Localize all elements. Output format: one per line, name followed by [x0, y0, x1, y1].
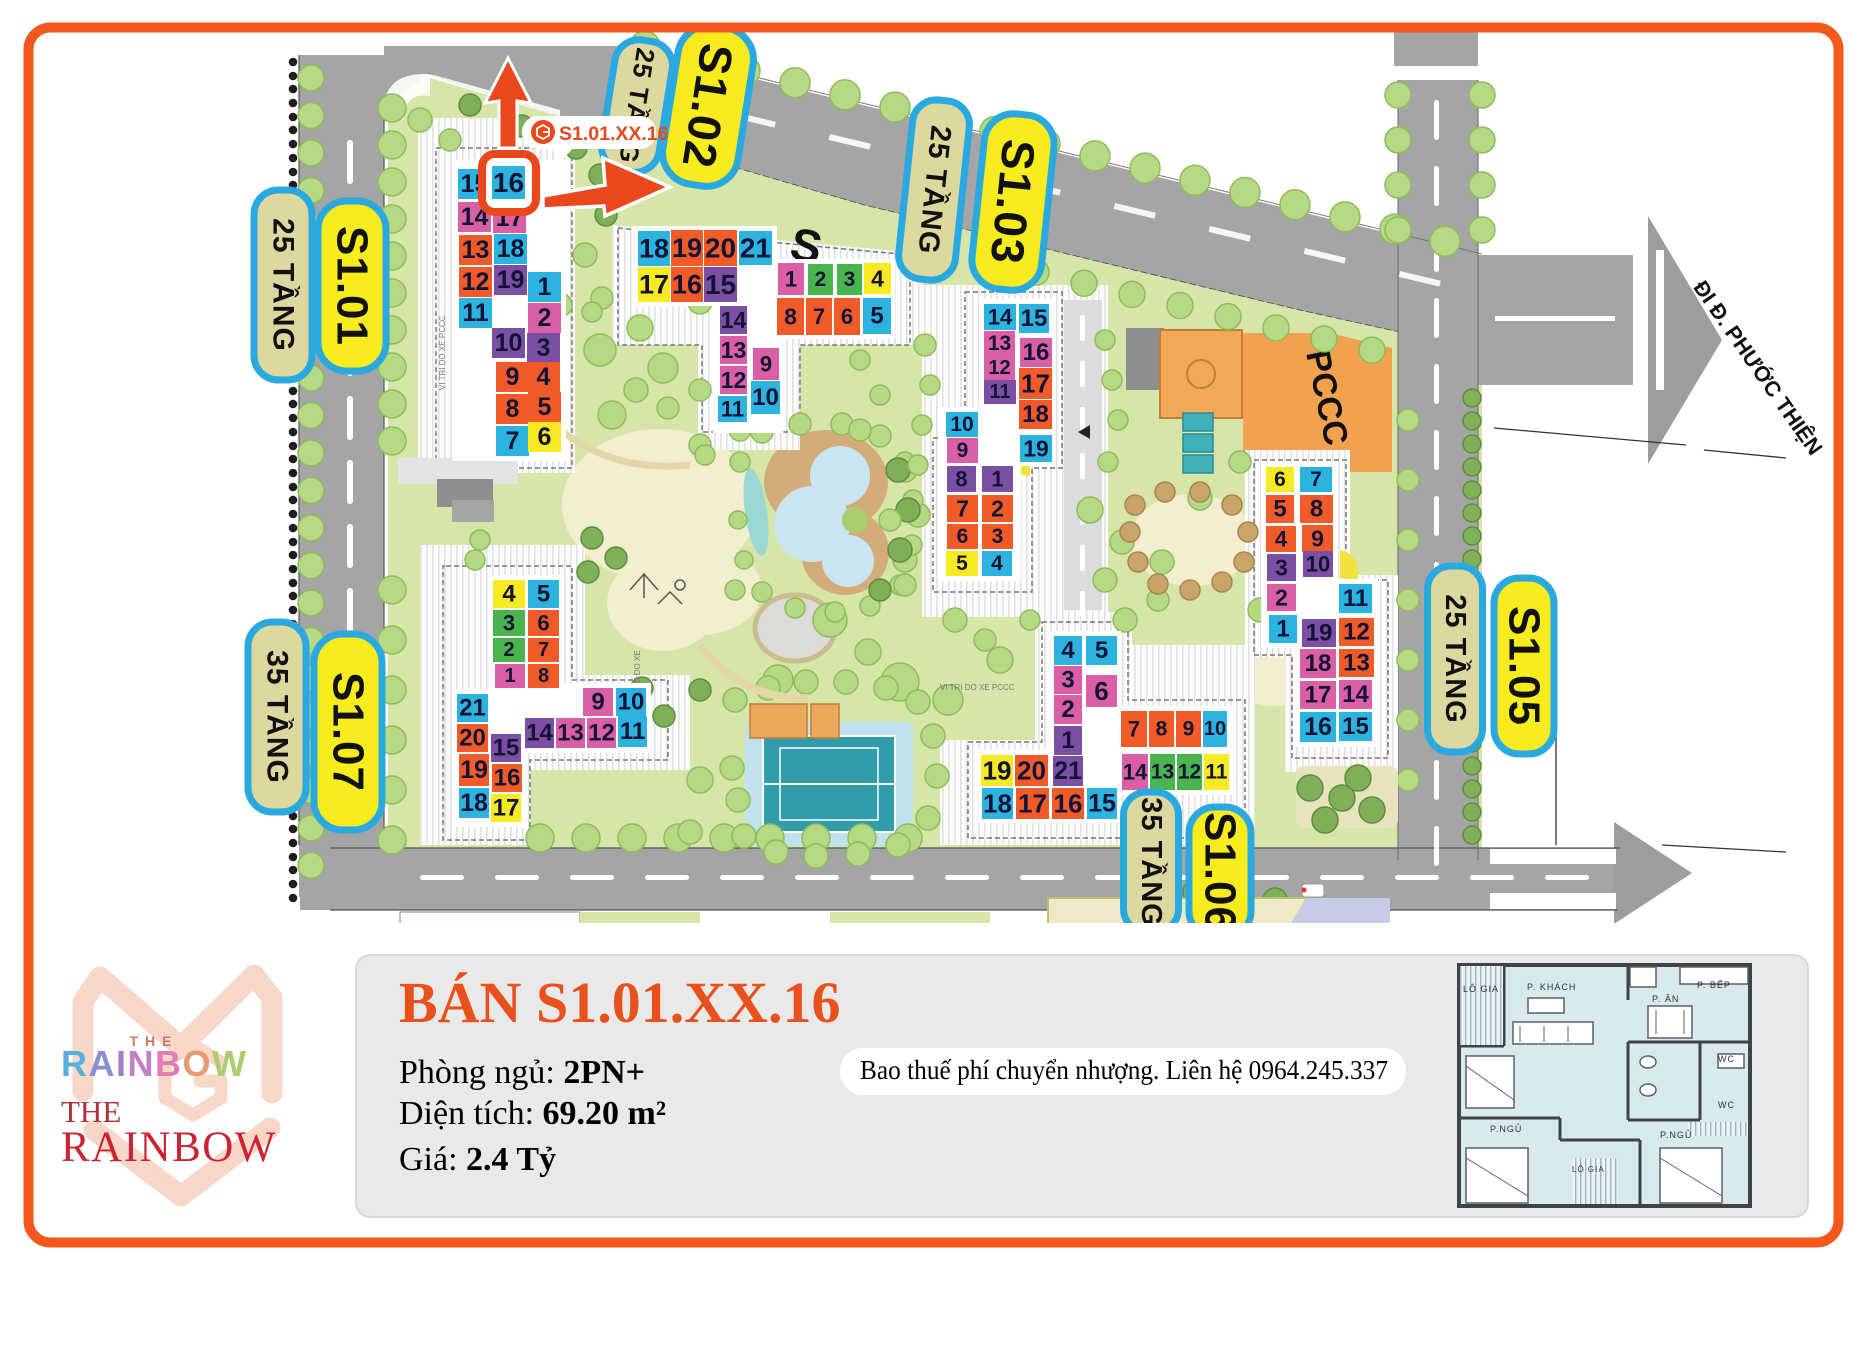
svg-text:P. ĂN: P. ĂN: [1652, 994, 1679, 1004]
svg-text:3: 3: [844, 268, 856, 291]
svg-text:5: 5: [537, 581, 550, 608]
svg-text:12: 12: [462, 268, 490, 296]
svg-text:11: 11: [1205, 761, 1228, 784]
svg-text:9: 9: [506, 363, 520, 391]
svg-text:8: 8: [955, 467, 967, 492]
svg-text:2: 2: [538, 304, 552, 332]
svg-text:25 TẦNG: 25 TẦNG: [1439, 594, 1473, 723]
svg-text:20: 20: [459, 725, 486, 752]
svg-text:LÔ GIA: LÔ GIA: [1463, 984, 1499, 994]
svg-text:8: 8: [784, 304, 797, 330]
svg-text:16: 16: [1023, 339, 1050, 366]
svg-text:4: 4: [991, 552, 1003, 575]
svg-text:10: 10: [1204, 718, 1226, 740]
svg-text:15: 15: [1342, 713, 1369, 740]
svg-text:35 TẦNG: 35 TẦNG: [1135, 797, 1169, 926]
svg-text:6: 6: [957, 525, 969, 548]
svg-text:7: 7: [956, 496, 969, 522]
svg-text:VI TRI DO XE PCCC: VI TRI DO XE PCCC: [940, 683, 1015, 692]
svg-text:16: 16: [493, 167, 524, 198]
svg-text:5: 5: [1273, 496, 1286, 523]
svg-text:19: 19: [460, 756, 488, 784]
svg-text:11: 11: [620, 718, 645, 745]
svg-text:15: 15: [493, 735, 520, 762]
svg-text:16: 16: [1304, 713, 1332, 741]
svg-text:17: 17: [639, 270, 669, 300]
svg-text:1: 1: [991, 467, 1003, 492]
svg-text:S1.07: S1.07: [324, 672, 373, 792]
svg-text:15: 15: [1021, 305, 1048, 332]
svg-text:6: 6: [1274, 468, 1286, 491]
svg-text:18: 18: [983, 789, 1012, 819]
svg-text:13: 13: [988, 332, 1011, 355]
svg-text:Giá: 2.4 Tỷ: Giá: 2.4 Tỷ: [399, 1141, 556, 1178]
svg-text:8: 8: [506, 395, 520, 423]
svg-text:2: 2: [1061, 696, 1074, 723]
svg-text:14: 14: [526, 720, 553, 747]
svg-text:17: 17: [1018, 789, 1047, 819]
svg-text:19: 19: [1023, 436, 1049, 462]
svg-text:10: 10: [618, 689, 645, 716]
svg-text:11: 11: [462, 299, 489, 327]
svg-text:14: 14: [1123, 760, 1148, 785]
svg-text:9: 9: [760, 352, 772, 377]
svg-text:2: 2: [503, 639, 514, 661]
svg-text:S1.01: S1.01: [328, 226, 377, 346]
svg-text:13: 13: [1151, 761, 1174, 784]
svg-text:13: 13: [462, 236, 490, 264]
svg-text:13: 13: [721, 337, 747, 363]
svg-text:16: 16: [1054, 789, 1083, 819]
svg-text:21: 21: [740, 233, 771, 264]
svg-text:7: 7: [506, 427, 520, 455]
svg-text:13: 13: [1343, 650, 1370, 677]
svg-text:1: 1: [1061, 727, 1074, 754]
svg-text:14: 14: [721, 307, 747, 333]
svg-text:1: 1: [504, 665, 515, 687]
svg-text:BÁN S1.01.XX.16: BÁN S1.01.XX.16: [399, 970, 841, 1035]
svg-text:WC: WC: [1718, 1100, 1735, 1110]
svg-text:19: 19: [672, 233, 702, 263]
svg-text:7: 7: [813, 304, 825, 329]
svg-text:13: 13: [557, 720, 584, 747]
svg-text:16: 16: [672, 270, 702, 300]
svg-text:3: 3: [503, 611, 515, 636]
svg-text:8: 8: [1156, 718, 1168, 741]
svg-text:4: 4: [1275, 527, 1288, 552]
svg-text:Bao thuế phí chuyển nhượng. Li: Bao thuế phí chuyển nhượng. Liên hệ 0964…: [860, 1055, 1388, 1085]
svg-text:11: 11: [721, 397, 744, 422]
svg-text:17: 17: [1021, 369, 1050, 399]
svg-text:4: 4: [1061, 637, 1075, 664]
svg-text:10: 10: [752, 384, 779, 411]
svg-text:5: 5: [538, 393, 552, 421]
svg-text:VI TRI DO XE PCCC: VI TRI DO XE PCCC: [438, 315, 447, 390]
svg-text:Phòng ngủ: 2PN+: Phòng ngủ: 2PN+: [399, 1054, 645, 1091]
svg-text:14: 14: [988, 305, 1013, 330]
svg-text:3: 3: [992, 525, 1004, 548]
svg-text:3: 3: [1275, 555, 1288, 581]
svg-text:5: 5: [1095, 637, 1108, 664]
svg-text:RAINBOW: RAINBOW: [61, 1124, 277, 1171]
svg-text:18: 18: [1305, 650, 1332, 677]
svg-text:10: 10: [950, 413, 973, 436]
svg-text:P.NGỦ: P.NGỦ: [1660, 1129, 1692, 1140]
svg-text:4: 4: [537, 363, 551, 391]
svg-text:Diện tích: 69.20 m²: Diện tích: 69.20 m²: [399, 1095, 666, 1132]
svg-text:11: 11: [989, 381, 1010, 403]
svg-text:18: 18: [1022, 401, 1049, 428]
svg-text:P. KHÁCH: P. KHÁCH: [1527, 982, 1576, 992]
svg-text:9: 9: [1183, 718, 1195, 741]
svg-text:19: 19: [1306, 620, 1333, 647]
svg-text:19: 19: [497, 266, 525, 294]
svg-text:10: 10: [1306, 552, 1330, 577]
svg-text:21: 21: [1054, 757, 1082, 785]
svg-text:16: 16: [494, 765, 521, 792]
svg-text:1: 1: [785, 267, 797, 292]
svg-text:7: 7: [1128, 717, 1140, 742]
svg-text:6: 6: [537, 611, 549, 636]
svg-text:17: 17: [1305, 682, 1332, 709]
svg-text:20: 20: [705, 233, 736, 264]
svg-text:20: 20: [1017, 756, 1046, 786]
svg-text:12: 12: [1343, 619, 1370, 646]
svg-text:12: 12: [588, 720, 615, 747]
svg-text:4: 4: [502, 581, 516, 608]
svg-text:2: 2: [1275, 585, 1288, 611]
svg-text:P. BẾP: P. BẾP: [1697, 980, 1731, 990]
svg-text:RAINBOW: RAINBOW: [61, 1043, 248, 1084]
svg-text:5: 5: [870, 303, 883, 330]
svg-text:2: 2: [815, 268, 827, 291]
svg-text:12: 12: [988, 357, 1010, 379]
svg-text:7: 7: [1310, 468, 1322, 491]
svg-text:21: 21: [459, 695, 486, 722]
svg-text:10: 10: [495, 329, 523, 357]
svg-text:6: 6: [538, 423, 552, 451]
svg-text:15: 15: [1088, 790, 1116, 818]
svg-text:8: 8: [538, 665, 549, 687]
svg-text:9: 9: [1311, 526, 1324, 552]
svg-text:S1.01.XX.16: S1.01.XX.16: [559, 123, 669, 145]
svg-text:3: 3: [1061, 667, 1074, 694]
svg-text:7: 7: [538, 639, 549, 661]
svg-text:9: 9: [957, 439, 969, 462]
svg-text:18: 18: [497, 235, 525, 263]
svg-text:8: 8: [1310, 496, 1323, 523]
svg-text:9: 9: [591, 689, 604, 716]
svg-text:11: 11: [1343, 585, 1368, 612]
svg-text:17: 17: [493, 795, 520, 822]
svg-text:LÔ GIA: LÔ GIA: [1572, 1165, 1605, 1174]
svg-text:3: 3: [537, 334, 551, 362]
svg-text:14: 14: [1342, 681, 1369, 708]
svg-text:19: 19: [983, 756, 1012, 786]
svg-text:S1.06: S1.06: [1196, 812, 1245, 932]
svg-text:5: 5: [956, 552, 968, 575]
svg-text:1: 1: [538, 273, 552, 301]
svg-text:4: 4: [871, 266, 884, 292]
svg-text:P.NGỦ: P.NGỦ: [1490, 1123, 1522, 1134]
svg-text:35 TẦNG: 35 TẦNG: [261, 650, 295, 784]
svg-text:WC: WC: [1718, 1054, 1735, 1064]
svg-text:6: 6: [1094, 676, 1108, 706]
svg-text:18: 18: [639, 234, 669, 264]
svg-text:S1.05: S1.05: [1500, 606, 1549, 726]
svg-text:18: 18: [460, 789, 488, 817]
svg-text:12: 12: [721, 367, 747, 393]
svg-text:2: 2: [991, 496, 1004, 522]
svg-text:6: 6: [841, 304, 853, 329]
svg-text:25 TẦNG: 25 TẦNG: [267, 218, 301, 352]
svg-text:1: 1: [1276, 616, 1289, 643]
svg-text:12: 12: [1178, 761, 1201, 784]
svg-text:15: 15: [705, 269, 736, 300]
